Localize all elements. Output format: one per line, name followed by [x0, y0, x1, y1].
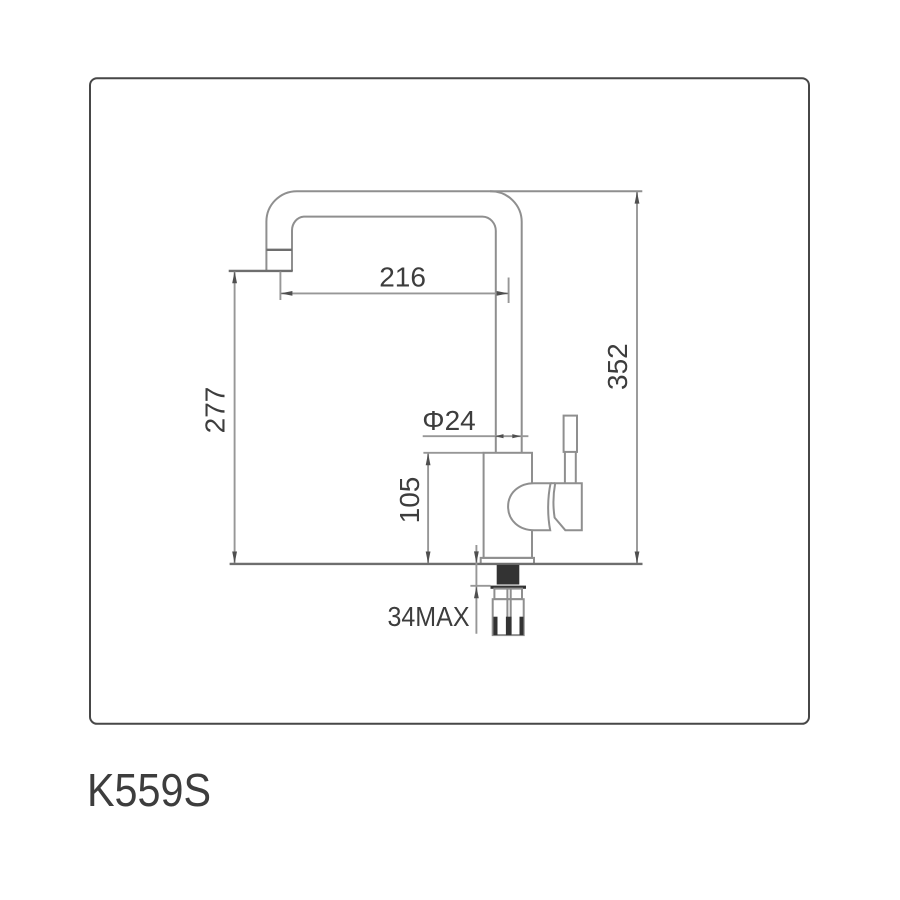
svg-text:352: 352: [602, 343, 633, 390]
svg-text:34MAX: 34MAX: [388, 601, 470, 632]
svg-text:216: 216: [379, 262, 426, 293]
svg-text:Φ24: Φ24: [422, 405, 475, 436]
svg-text:277: 277: [200, 387, 231, 434]
svg-text:105: 105: [394, 477, 425, 524]
svg-text:K559S: K559S: [87, 764, 211, 816]
